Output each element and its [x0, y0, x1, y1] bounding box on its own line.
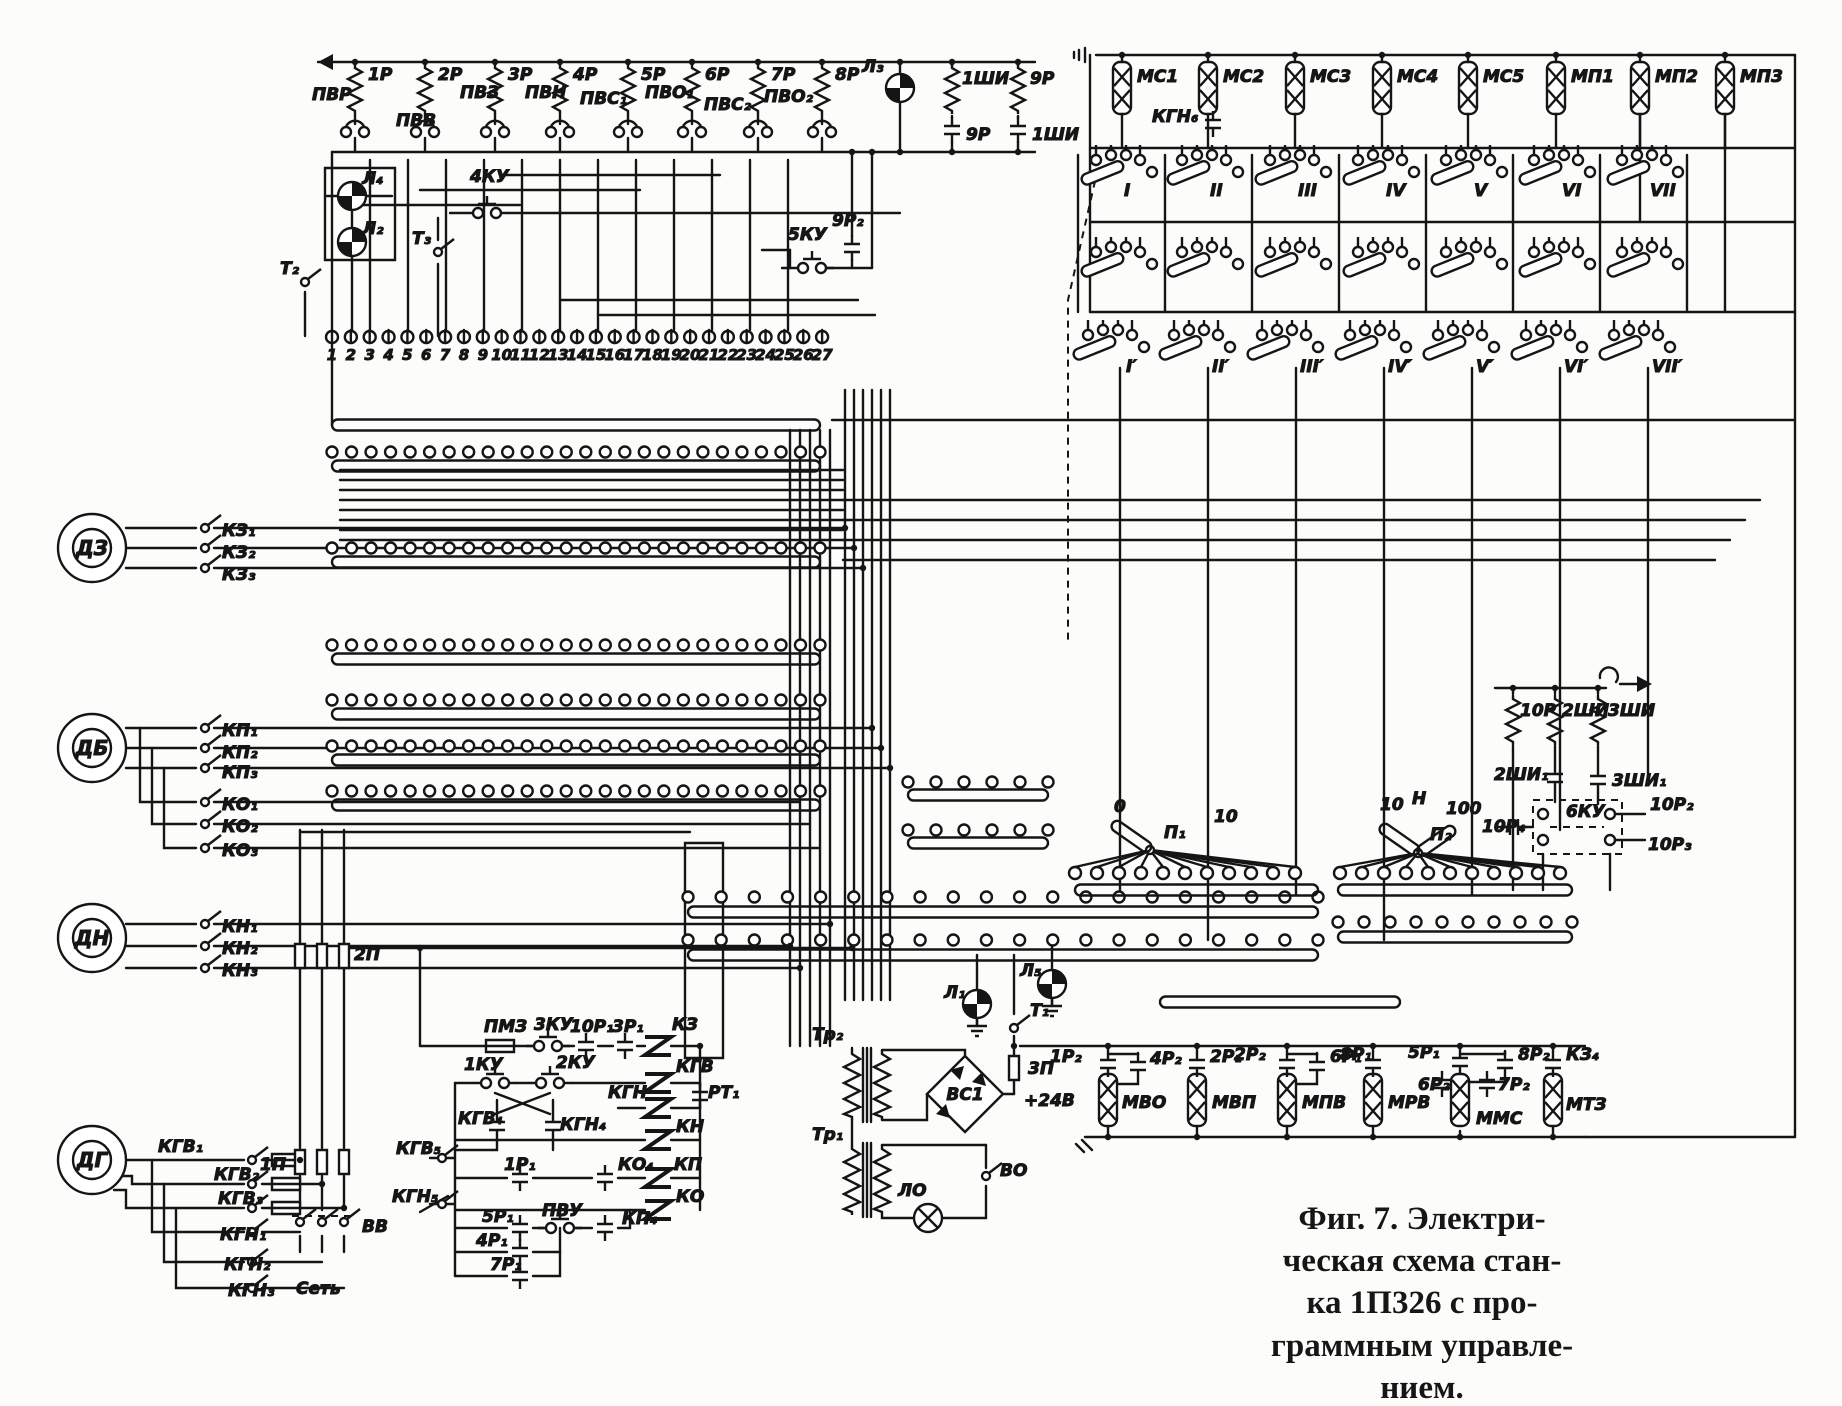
transformer-tr2-secondary	[874, 1050, 890, 1120]
selector-p2-contact	[1378, 867, 1390, 879]
label-kgv: КГВ	[676, 1057, 714, 1077]
label-kgn1: КГН₁	[220, 1225, 266, 1245]
label-pvo1: ПВО₁	[645, 83, 694, 103]
thermal-pmz	[486, 1040, 514, 1052]
contact-9r2	[844, 235, 860, 261]
wire	[882, 1215, 914, 1218]
contact-point	[366, 640, 377, 651]
contact-point	[1043, 777, 1054, 788]
label-ku3: 3КУ	[534, 1015, 574, 1035]
junction-dot	[697, 1043, 703, 1049]
contact-point	[795, 447, 806, 458]
contact-point	[1489, 917, 1500, 928]
fuse-1p	[317, 1150, 327, 1174]
label-pvn: ПВН	[525, 83, 566, 103]
relay-coil-r7	[751, 64, 765, 114]
label-r3_1: 3Р₁	[612, 1017, 644, 1037]
tr1-core	[863, 1143, 871, 1217]
junction-dot	[819, 59, 825, 65]
bus-arrow-icon	[318, 54, 333, 70]
caption-line: нием.	[1212, 1367, 1632, 1406]
junction-dot	[1284, 1134, 1290, 1140]
contact-point	[619, 741, 630, 752]
label-mp3: МП3	[1740, 67, 1783, 87]
contact-point	[424, 447, 435, 458]
6ku-contact	[1605, 809, 1615, 819]
label-b4p: IV′	[1388, 357, 1412, 377]
contact-point	[385, 447, 396, 458]
contact-point	[639, 786, 650, 797]
contact-point	[444, 543, 455, 554]
contact-point	[717, 695, 728, 706]
label-r9: 9Р	[1030, 69, 1055, 89]
schematic-canvas: 1234567891011121314151617181920212223242…	[0, 0, 1842, 1406]
contact-point	[1437, 917, 1448, 928]
label-r5_1: 5Р₁	[482, 1207, 514, 1227]
contact-point	[444, 640, 455, 651]
solenoid-mp2	[1631, 62, 1649, 114]
solenoid-mvp	[1188, 1074, 1206, 1126]
contact-point	[795, 741, 806, 752]
contact-point	[775, 447, 786, 458]
contact-point	[444, 447, 455, 458]
label-b7: VII	[1650, 181, 1676, 201]
label-kn1: КН₁	[222, 917, 258, 937]
contact-point	[815, 786, 826, 797]
label-ms4: МС4	[1397, 67, 1438, 87]
motor-contact	[201, 555, 221, 572]
junction-dot	[849, 945, 855, 951]
label-kgn: КГН	[608, 1083, 647, 1103]
label-kp1: КП₁	[222, 721, 258, 741]
selector-bank-prime-4	[1334, 320, 1411, 361]
junction-dot	[1205, 52, 1211, 58]
contact-point	[1114, 935, 1125, 946]
contact-point	[717, 640, 728, 651]
junction-dot	[1637, 52, 1643, 58]
selector-p1-contact	[1223, 867, 1235, 879]
contact-point	[541, 741, 552, 752]
contact-point	[1279, 935, 1290, 946]
contact-point	[580, 447, 591, 458]
junction-dot	[797, 965, 803, 971]
wire-curl	[1600, 668, 1618, 682]
label-r10_3: 10Р₃	[1648, 835, 1692, 855]
junction-dot	[1595, 685, 1601, 691]
contact-point	[522, 786, 533, 797]
label-mms: ММС	[1476, 1109, 1523, 1129]
solenoid-ms3	[1286, 62, 1304, 114]
contact-point	[1014, 892, 1025, 903]
contact-point	[541, 786, 552, 797]
label-mvo: МВО	[1122, 1093, 1166, 1113]
contact-point	[658, 695, 669, 706]
6ku-contact	[1538, 835, 1548, 845]
terminal-number: 5	[402, 346, 412, 364]
junction-dot	[1284, 1043, 1290, 1049]
bus-bar	[688, 907, 1318, 918]
label-v24: +24В	[1024, 1091, 1075, 1111]
contact-point	[717, 786, 728, 797]
junction-dot	[689, 59, 695, 65]
label-r4_1: 4Р₁	[475, 1231, 508, 1251]
contact-point	[915, 935, 926, 946]
switch-t2	[301, 269, 321, 286]
label-mvp: МВП	[1212, 1093, 1256, 1113]
label-r7_1: 7Р₁	[490, 1255, 522, 1275]
label-kgn6: КГН₆	[1152, 107, 1198, 127]
contact-point	[658, 447, 669, 458]
selector-bank-4	[1342, 145, 1419, 186]
terminal-number: 16	[604, 346, 625, 364]
label-kz3: КЗ₃	[222, 565, 256, 585]
lamp-l1	[963, 990, 991, 1018]
contact-point	[366, 447, 377, 458]
label-b3: III	[1298, 181, 1317, 201]
label-p2f: 2П	[354, 945, 380, 965]
label-pi1: П₁	[1164, 823, 1186, 843]
contact-point	[561, 741, 572, 752]
label-kp3: КП₃	[222, 763, 258, 783]
contact-point	[697, 543, 708, 554]
contact-point	[1080, 892, 1091, 903]
contact-point	[561, 695, 572, 706]
contact-point	[1180, 935, 1191, 946]
label-kn: КН	[676, 1117, 704, 1137]
label-lo: ЛО	[897, 1181, 927, 1201]
contact-point	[600, 447, 611, 458]
contact-point	[327, 640, 338, 651]
contact-point	[678, 786, 689, 797]
label-r3: 3Р	[508, 65, 533, 85]
bus-arrow-right-icon	[1637, 676, 1652, 692]
label-db: ДБ	[74, 736, 108, 760]
bus-bar	[1338, 885, 1572, 896]
contact-point	[717, 741, 728, 752]
contact-point	[1147, 935, 1158, 946]
contact-point	[881, 892, 892, 903]
contact-point	[424, 741, 435, 752]
contact-point	[749, 935, 760, 946]
contact-point	[346, 543, 357, 554]
contact-point	[541, 447, 552, 458]
terminal-number: 7	[440, 346, 451, 364]
terminal-number: 1	[327, 346, 337, 364]
contact-point	[483, 640, 494, 651]
lamp-l3	[886, 74, 914, 102]
contact-point	[915, 892, 926, 903]
label-b3p: III′	[1300, 357, 1324, 377]
label-dg: ДГ	[76, 1148, 109, 1172]
contact-point	[580, 741, 591, 752]
selector-p2-contact	[1466, 867, 1478, 879]
label-pvs2: ПВС₂	[704, 95, 752, 115]
junction-dot	[887, 765, 893, 771]
terminal-number: 12	[529, 346, 550, 364]
contact-point	[385, 741, 396, 752]
contact-point	[775, 741, 786, 752]
label-r1_2: 1Р₂	[1050, 1047, 1082, 1067]
label-r4_2: 4Р₂	[1149, 1049, 1182, 1069]
junction-dot	[417, 945, 423, 951]
label-r5_1b: 5Р₁	[1408, 1043, 1440, 1063]
contact-point	[619, 786, 630, 797]
contact-point	[775, 695, 786, 706]
contact-point	[697, 695, 708, 706]
schematic-page: 1234567891011121314151617181920212223242…	[0, 0, 1842, 1406]
terminal-number: 3	[364, 346, 374, 364]
contact-point	[346, 447, 357, 458]
contact-point	[483, 695, 494, 706]
contact-point	[697, 786, 708, 797]
label-kgv3: КГВ₃	[218, 1189, 264, 1209]
junction-dot	[1015, 149, 1021, 155]
contact-point	[444, 741, 455, 752]
wire	[1287, 1053, 1317, 1054]
contact-point	[1313, 935, 1324, 946]
label-kp2: КП₂	[222, 743, 258, 763]
contact-7r2	[1479, 1071, 1495, 1097]
label-p1f: 1П	[260, 1155, 286, 1175]
label-kgn4: КГН₄	[560, 1115, 606, 1135]
terminal-number: 2	[346, 346, 356, 364]
label-ko: КО	[676, 1187, 704, 1207]
resistor-10r	[1506, 695, 1520, 745]
contact-point	[848, 892, 859, 903]
label-shi3_1: 3ШИ₁	[1612, 771, 1667, 791]
contact-point	[424, 786, 435, 797]
selector-p2-contact	[1532, 867, 1544, 879]
contact-point	[815, 543, 826, 554]
selector-p2-contact	[1422, 867, 1434, 879]
selector-bank-mid-4	[1342, 237, 1419, 278]
contact-3shi1	[1590, 767, 1606, 793]
contact-point	[756, 640, 767, 651]
label-r10: 10Р	[1520, 701, 1557, 721]
junction-dot	[1379, 52, 1385, 58]
contact-point	[683, 935, 694, 946]
contact-point	[736, 741, 747, 752]
label-l4: Л₄	[361, 169, 384, 189]
contact-point	[463, 447, 474, 458]
contact-2r1	[1189, 1051, 1205, 1077]
contact-point	[522, 640, 533, 651]
contact-point	[815, 935, 826, 946]
label-mp2: МП2	[1655, 67, 1698, 87]
contact-point	[619, 447, 630, 458]
label-ko1: КО₁	[222, 795, 258, 815]
label-pvs1: ПВС₁	[580, 89, 627, 109]
switch-t1	[1010, 1015, 1030, 1032]
lamp-lo	[914, 1204, 942, 1232]
contact-point	[658, 640, 669, 651]
label-ku2: 2КУ	[556, 1053, 596, 1073]
contact-point	[881, 935, 892, 946]
6ku-contact	[1538, 809, 1548, 819]
label-l1: Л₁	[943, 983, 966, 1003]
contact-point	[483, 543, 494, 554]
contact-point	[736, 447, 747, 458]
contact-point	[600, 640, 611, 651]
contact-point	[444, 786, 455, 797]
contact-point	[424, 543, 435, 554]
bus-bar	[332, 709, 820, 720]
contact-point	[405, 640, 416, 651]
6ku-contact	[1605, 835, 1615, 845]
lamp-l5	[1038, 970, 1066, 998]
solenoid-mp1	[1547, 62, 1565, 114]
label-mpv: МПВ	[1302, 1093, 1346, 1113]
terminal-number: 8	[459, 346, 469, 364]
contact-point	[775, 786, 786, 797]
solenoid-mvo	[1099, 1074, 1117, 1126]
contact-point	[600, 695, 611, 706]
contact-point	[716, 892, 727, 903]
contact-point	[959, 825, 970, 836]
terminal-number: 23	[736, 346, 757, 364]
label-kgn2: КГН₂	[224, 1255, 271, 1275]
contact-point	[502, 543, 513, 554]
wire	[140, 728, 196, 802]
label-r10_1: 10Р₁	[570, 1017, 614, 1037]
label-b4: IV	[1386, 181, 1407, 201]
label-r10_2: 10Р₂	[1650, 795, 1694, 815]
contact-point	[346, 640, 357, 651]
contact-point	[756, 447, 767, 458]
label-kgv4: КГВ₄	[458, 1109, 503, 1129]
label-kp: КП	[674, 1155, 702, 1175]
label-pi2: П₂	[1430, 825, 1452, 845]
junction-dot	[625, 59, 631, 65]
contact-point	[463, 741, 474, 752]
tr2-core	[863, 1048, 871, 1122]
label-b6: VI	[1562, 181, 1581, 201]
contact-point	[522, 695, 533, 706]
contact-point	[736, 786, 747, 797]
label-vo: ВО	[1000, 1161, 1027, 1181]
terminal-number: 6	[421, 346, 431, 364]
motor-contact	[201, 515, 221, 532]
contact-point	[697, 640, 708, 651]
selector-bank-3	[1254, 145, 1331, 186]
label-r10_4: 10Р₄	[1482, 817, 1526, 837]
contact-point	[815, 741, 826, 752]
contact-point	[580, 695, 591, 706]
contact-point	[1411, 917, 1422, 928]
coil-kgn	[645, 1099, 671, 1117]
contact-point	[483, 786, 494, 797]
label-kgv1: КГВ₁	[158, 1137, 203, 1157]
label-shi2_1: 2ШИ₁	[1494, 765, 1549, 785]
selector-p1-contact	[1267, 867, 1279, 879]
contact-point	[848, 935, 859, 946]
terminal-number: 9	[478, 346, 488, 364]
contact-point	[1567, 917, 1578, 928]
contact-point	[541, 543, 552, 554]
label-ko3: КО₃	[222, 841, 258, 861]
junction-dot	[1457, 1043, 1463, 1049]
contact-point	[405, 741, 416, 752]
motor-contact	[201, 535, 221, 552]
junction-dot	[352, 59, 358, 65]
label-kp4: КП₄	[622, 1209, 658, 1229]
contact-point	[463, 543, 474, 554]
label-mrv: МРВ	[1388, 1093, 1430, 1113]
label-z10b: 10	[1380, 795, 1404, 815]
motor-contact	[201, 933, 221, 950]
label-b1p: I′	[1126, 357, 1137, 377]
contact-point	[948, 892, 959, 903]
contact-point	[327, 447, 338, 458]
selector-p1-contact	[1245, 867, 1257, 879]
label-r8_2: 8Р₂	[1518, 1045, 1550, 1065]
contact-point	[385, 640, 396, 651]
contact-point	[366, 786, 377, 797]
contact-point	[405, 447, 416, 458]
contact-point	[815, 447, 826, 458]
bus-bar	[908, 790, 1048, 801]
contact-point	[678, 543, 689, 554]
relay-coil-r8	[815, 64, 829, 114]
label-pvr: ПВР	[312, 85, 352, 105]
label-kz4: КЗ₄	[1566, 1045, 1599, 1065]
contact-point	[1080, 935, 1091, 946]
vv-switch-pole	[318, 1209, 338, 1226]
contact-point	[1385, 917, 1396, 928]
label-t2: Т₂	[280, 259, 300, 279]
contact-point	[561, 543, 572, 554]
junction-dot	[492, 59, 498, 65]
contact-point	[1515, 917, 1526, 928]
contact-point	[639, 447, 650, 458]
solenoid-ms4	[1373, 62, 1391, 114]
selector-p1-contact	[1179, 867, 1191, 879]
label-b2p: II′	[1212, 357, 1230, 377]
terminal-number: 10	[491, 346, 512, 364]
selector-p2-contact	[1356, 867, 1368, 879]
junction-dot	[1194, 1134, 1200, 1140]
contact-point	[424, 640, 435, 651]
contact-point	[327, 741, 338, 752]
wire	[882, 1050, 965, 1056]
contact-point	[697, 447, 708, 458]
label-kz1: КЗ₁	[222, 521, 255, 541]
junction-dot	[842, 525, 848, 531]
contact-point	[736, 640, 747, 651]
selector-p2-contact	[1554, 867, 1566, 879]
terminal-number: 11	[510, 346, 531, 364]
contact-point	[424, 695, 435, 706]
contact-point	[678, 640, 689, 651]
contact-ko4	[597, 1165, 613, 1191]
contact-point	[815, 892, 826, 903]
junction-dot	[1011, 1043, 1017, 1049]
contact-point	[444, 695, 455, 706]
coil-kgv	[645, 1074, 671, 1092]
selector-bank-prime-1	[1072, 320, 1149, 361]
label-ku1: 1КУ	[464, 1055, 504, 1075]
label-r9_2: 9Р₂	[832, 211, 864, 231]
contact-point	[775, 640, 786, 651]
contact-point	[756, 543, 767, 554]
solenoid-ms1	[1113, 62, 1131, 114]
terminal-number: 20	[680, 346, 701, 364]
label-r1_1: 1Р₁	[504, 1155, 536, 1175]
label-r1: 1Р	[368, 65, 393, 85]
contact-point	[717, 543, 728, 554]
junction-dot	[897, 149, 903, 155]
contact-point	[405, 786, 416, 797]
